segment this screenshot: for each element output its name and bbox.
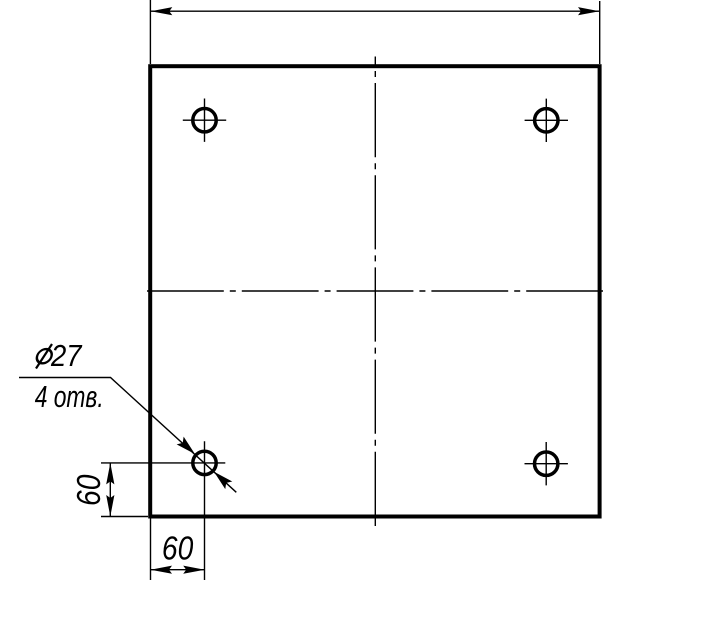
svg-text:27: 27 — [50, 338, 83, 373]
svg-text:60: 60 — [162, 530, 194, 567]
svg-text:4 отв.: 4 отв. — [35, 379, 104, 414]
svg-text:60: 60 — [70, 474, 107, 506]
